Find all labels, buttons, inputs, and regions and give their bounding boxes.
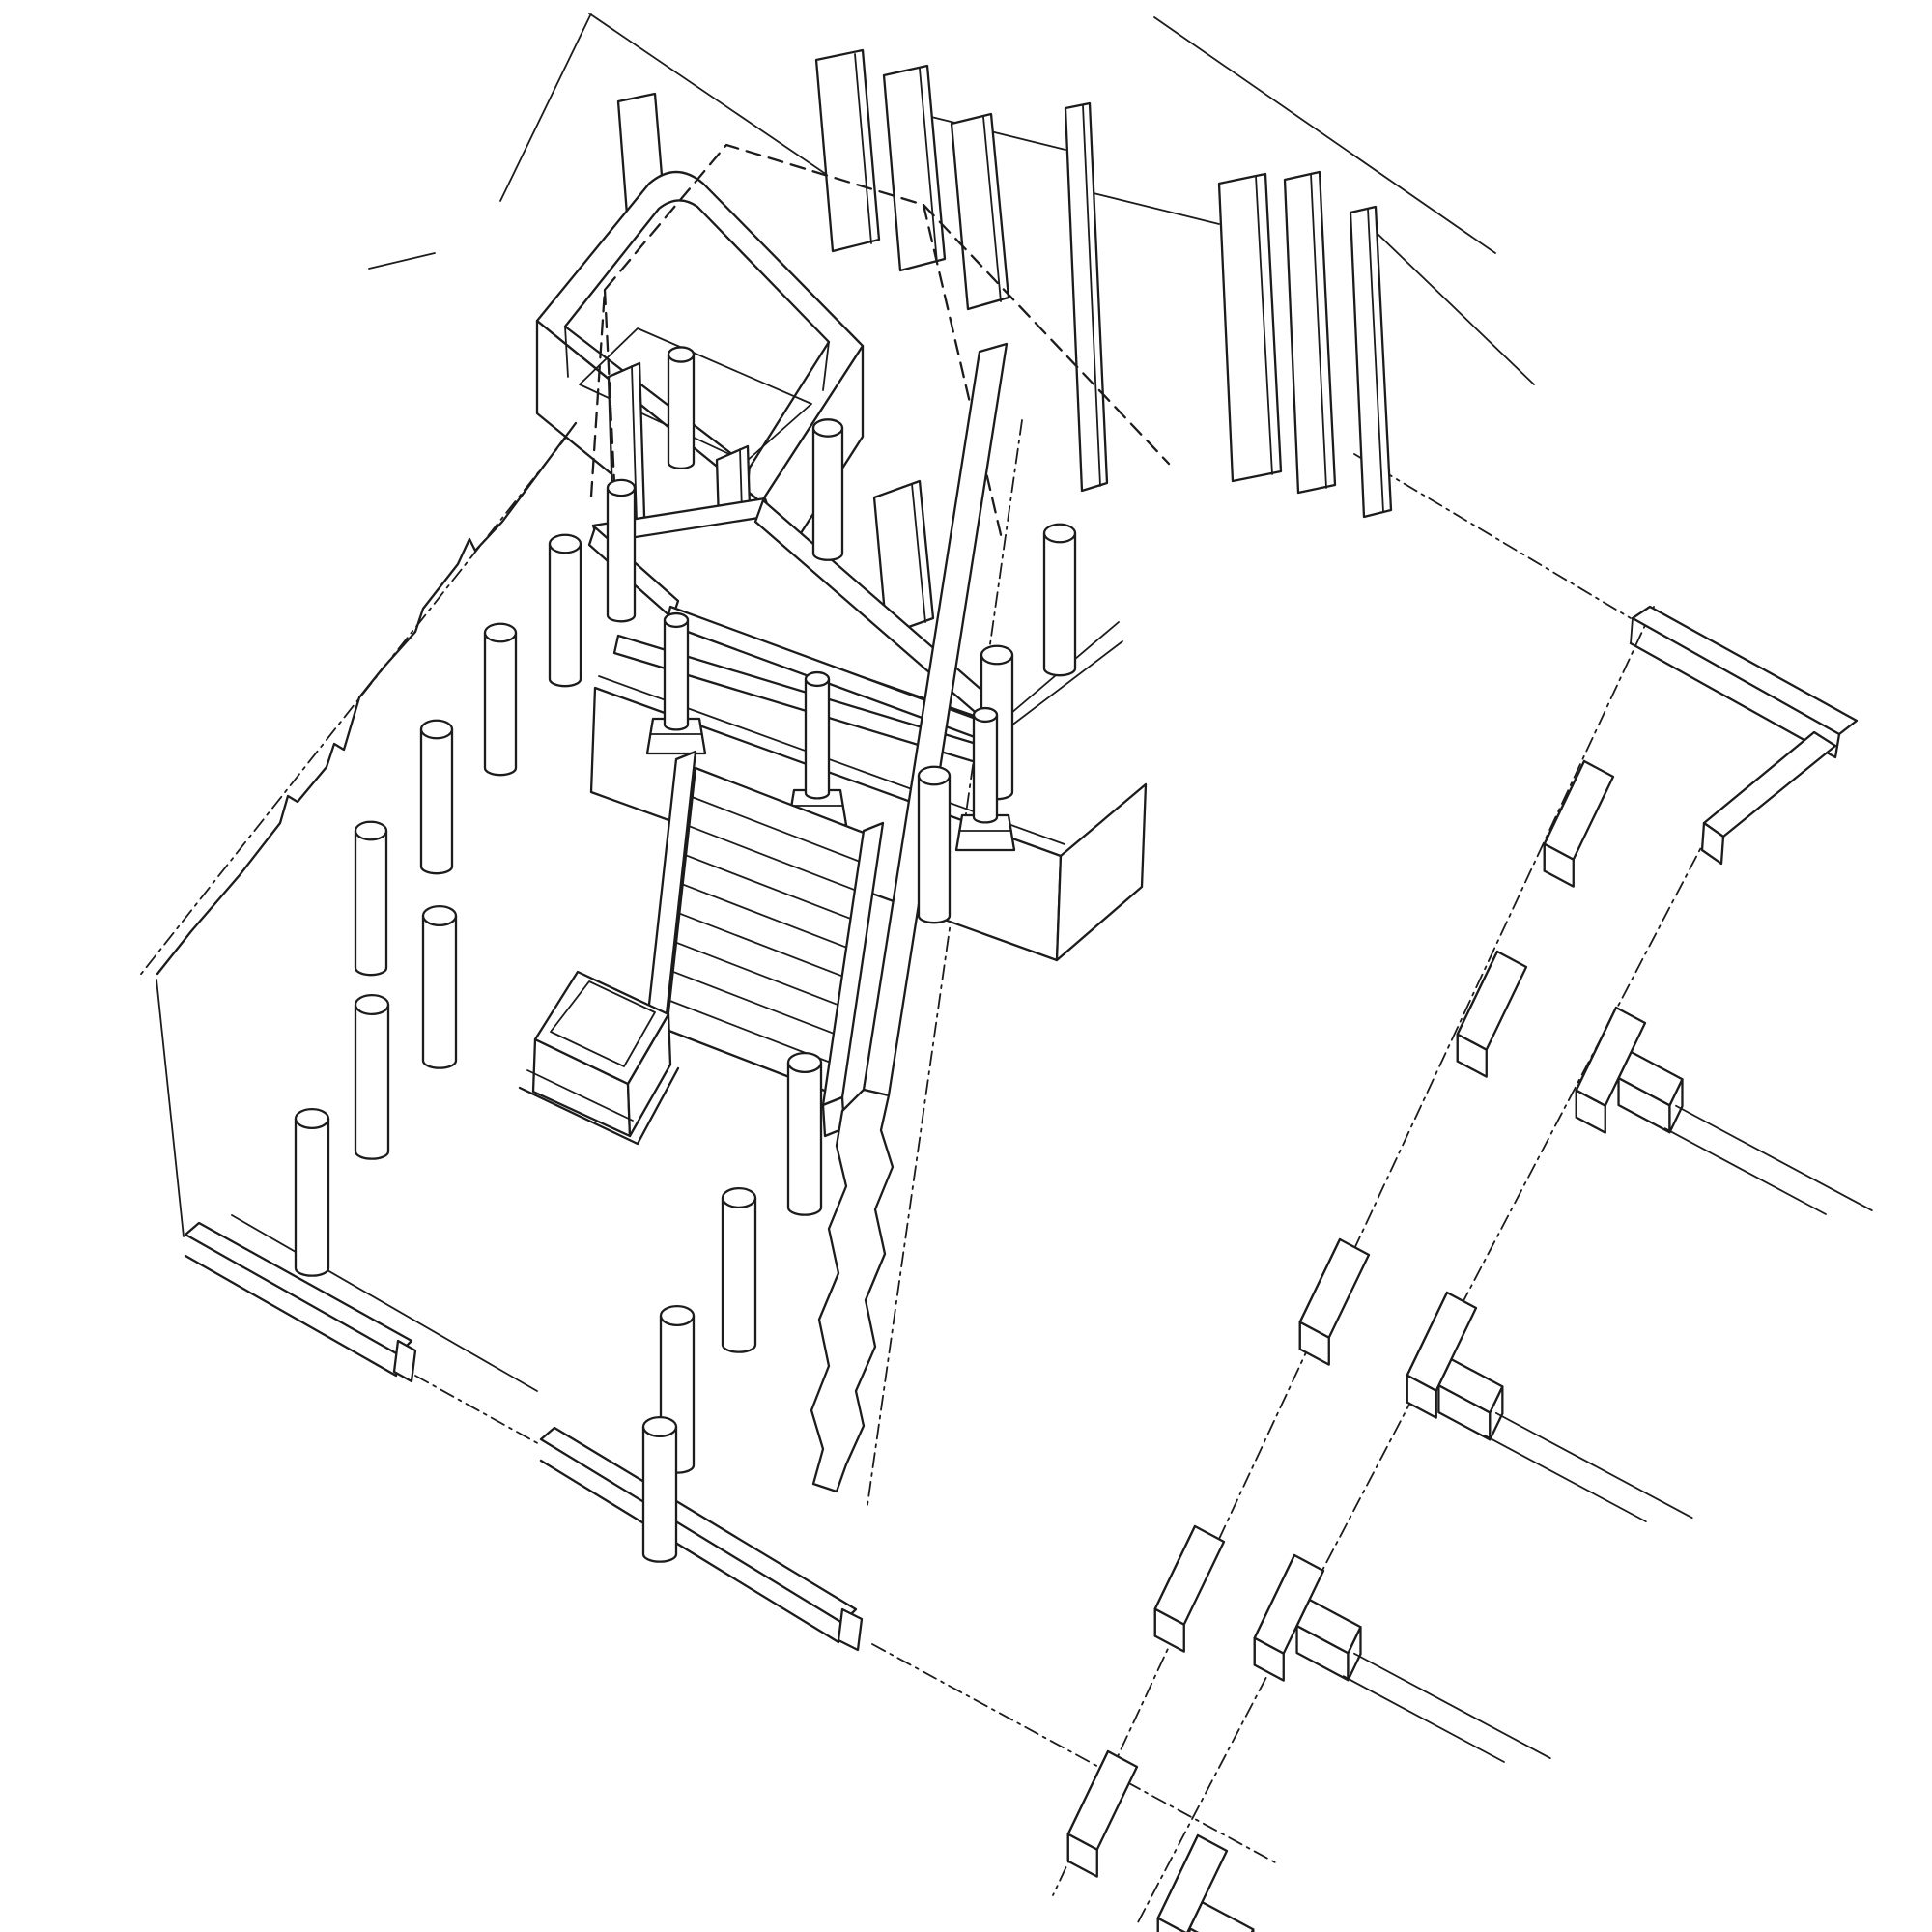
column-shaft — [423, 916, 456, 1068]
axonometric-drawing — [0, 0, 1932, 1932]
column-top — [974, 708, 997, 722]
column-top — [919, 767, 950, 785]
pier-top — [1545, 761, 1613, 860]
column-shaft — [550, 544, 581, 686]
column-shaft — [1044, 533, 1075, 675]
column-shaft — [974, 715, 997, 822]
column-top — [643, 1417, 676, 1436]
column-top — [355, 995, 388, 1014]
boundary-line — [1094, 193, 1219, 224]
column-top — [668, 347, 694, 361]
cross-wall-line — [1665, 1128, 1826, 1214]
boundary-line — [156, 980, 184, 1236]
column-top — [355, 822, 386, 840]
cross-wall-line — [1676, 1106, 1872, 1210]
column-top — [661, 1306, 694, 1325]
pier-top — [1155, 1526, 1224, 1625]
alignment-line-dashdot — [1354, 454, 1631, 618]
low-wall-beam-face — [541, 1461, 842, 1642]
column-shaft — [355, 1005, 388, 1159]
boundary-line — [927, 116, 1065, 150]
pier-top — [1300, 1239, 1369, 1338]
column-shaft — [788, 1063, 821, 1215]
podium-side-face — [1057, 784, 1146, 960]
column-top — [421, 721, 452, 739]
cross-wall-line — [1486, 1435, 1646, 1521]
boundary-line — [1154, 17, 1495, 253]
column-shaft — [919, 776, 950, 923]
corner-wall-strip — [1633, 607, 1857, 734]
pier-T — [1255, 1555, 1550, 1762]
column-shaft — [806, 679, 829, 798]
pier-rect — [1300, 1239, 1369, 1365]
alignment-line-dashdot — [415, 1376, 541, 1445]
column-top — [981, 646, 1012, 665]
pier-top — [1068, 1751, 1137, 1850]
column-top — [608, 480, 635, 496]
cross-wall-line — [1496, 1413, 1692, 1518]
column-top — [423, 906, 456, 925]
column-top — [806, 672, 829, 686]
column-top — [813, 419, 842, 436]
wall-slab — [952, 114, 1009, 309]
column-top — [788, 1053, 821, 1072]
wall-slab — [1285, 172, 1335, 493]
column-shaft — [723, 1198, 755, 1352]
wall-broken-stub — [811, 1090, 893, 1492]
boundary-line — [500, 14, 591, 201]
column-shaft — [668, 355, 694, 469]
cross-wall-line — [1354, 1654, 1550, 1758]
pier-T — [1577, 1008, 1872, 1214]
cross-wall-line — [1344, 1676, 1504, 1762]
side-aisle — [1068, 607, 1872, 1932]
pier-foundations — [1068, 761, 1872, 1932]
pier-rect — [1068, 1751, 1137, 1877]
column-top — [1044, 525, 1075, 543]
column-top — [665, 613, 688, 627]
boundary-line — [232, 1215, 537, 1391]
drawing-sheet — [0, 0, 1932, 1932]
pier-L — [1407, 1293, 1692, 1521]
boundary-line — [369, 253, 435, 269]
column-top — [485, 624, 516, 642]
corner-wall-end — [1631, 618, 1633, 643]
column-shaft — [355, 831, 386, 975]
column-shaft — [643, 1427, 676, 1562]
column-shaft — [485, 633, 516, 775]
column-shaft — [665, 620, 688, 729]
wall-slab — [1219, 174, 1281, 481]
pier-rect — [1458, 952, 1526, 1077]
column-top — [723, 1188, 755, 1207]
column-shaft — [296, 1119, 328, 1276]
column-top — [550, 535, 581, 554]
low-wall-beam — [541, 1428, 856, 1623]
column-top — [296, 1109, 328, 1128]
pier-L — [1158, 1835, 1443, 1932]
low-wall-beam-end — [838, 1609, 862, 1650]
boundary-line — [1376, 232, 1534, 384]
column-shaft — [421, 729, 452, 873]
pier-rect — [1155, 1526, 1224, 1652]
low-wall-beam-end — [394, 1341, 415, 1381]
corner-wall-strip — [1704, 732, 1835, 837]
pier-rect — [1545, 761, 1613, 887]
column-shaft — [608, 488, 635, 621]
column-shaft — [813, 428, 842, 560]
pier-top — [1458, 952, 1526, 1050]
